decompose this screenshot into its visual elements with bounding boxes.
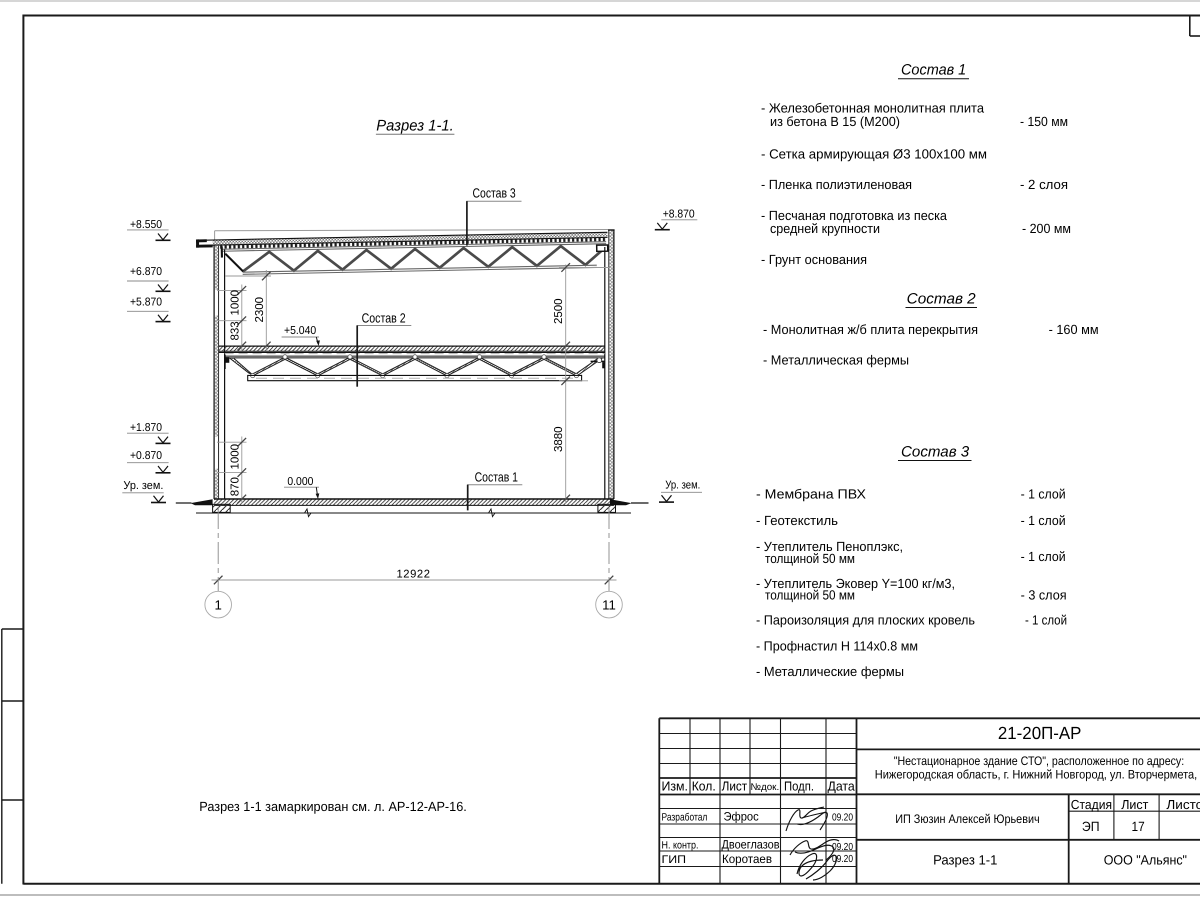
svg-text:2500: 2500 xyxy=(553,298,565,324)
svg-text:Коротаев: Коротаев xyxy=(722,852,772,866)
svg-text:+5.870: +5.870 xyxy=(130,297,162,309)
svg-text:2300: 2300 xyxy=(254,297,266,323)
svg-text:+1.870: +1.870 xyxy=(130,422,162,434)
svg-text:11: 11 xyxy=(602,597,616,612)
svg-text:Эфрос: Эфрос xyxy=(724,810,759,824)
svg-text:- 200 мм: - 200 мм xyxy=(1022,221,1071,236)
svg-text:+8.870: +8.870 xyxy=(663,209,695,221)
svg-text:Разрез 1-1.: Разрез 1-1. xyxy=(376,118,454,135)
svg-text:ЭП: ЭП xyxy=(1082,819,1100,834)
svg-text:- Геотекстиль: - Геотекстиль xyxy=(756,513,838,528)
svg-text:3880: 3880 xyxy=(553,426,565,452)
svg-text:+8.550: +8.550 xyxy=(130,219,162,231)
svg-text:Н. контр.: Н. контр. xyxy=(662,840,699,852)
svg-text:+5.040: +5.040 xyxy=(284,325,316,337)
svg-text:1000: 1000 xyxy=(229,290,241,316)
svg-text:- 1 слой: - 1 слой xyxy=(1021,487,1066,502)
svg-text:- Сетка армирующая Ø3 100х100: - Сетка армирующая Ø3 100х100 мм xyxy=(761,147,987,162)
svg-text:- Монолитная ж/б плита перекры: - Монолитная ж/б плита перекрытия xyxy=(763,322,978,337)
svg-text:17: 17 xyxy=(1132,819,1145,834)
svg-text:12922: 12922 xyxy=(396,569,430,581)
svg-text:1000: 1000 xyxy=(229,444,241,470)
svg-text:Лист: Лист xyxy=(722,779,748,794)
svg-text:Стадия: Стадия xyxy=(1071,797,1112,812)
svg-text:09.20: 09.20 xyxy=(832,812,853,823)
svg-text:"Нестационарное здание СТО", р: "Нестационарное здание СТО", расположенн… xyxy=(894,754,1184,768)
svg-text:Ур. зем.: Ур. зем. xyxy=(665,480,700,492)
svg-text:толщиной 50 мм: толщиной 50 мм xyxy=(765,588,855,603)
svg-text:- 2 слоя: - 2 слоя xyxy=(1020,177,1068,192)
svg-text:870: 870 xyxy=(229,477,241,496)
svg-text:Состав 2: Состав 2 xyxy=(907,290,977,307)
svg-text:толщиной 50 мм: толщиной 50 мм xyxy=(765,551,855,566)
svg-text:09.20: 09.20 xyxy=(832,842,853,853)
svg-text:Изм.: Изм. xyxy=(662,779,689,794)
svg-text:Состав 3: Состав 3 xyxy=(473,185,516,200)
svg-text:- Металлические фермы: - Металлические фермы xyxy=(756,664,904,679)
svg-text:Двоеглазов: Двоеглазов xyxy=(722,838,780,852)
svg-text:Состав 2: Состав 2 xyxy=(362,310,406,325)
svg-text:- 1 слой: - 1 слой xyxy=(1025,613,1067,628)
svg-text:0.000: 0.000 xyxy=(287,476,313,488)
svg-text:ГИП: ГИП xyxy=(662,854,687,866)
svg-text:ИП Зюзин Алексей Юрьевич: ИП Зюзин Алексей Юрьевич xyxy=(895,812,1039,826)
svg-text:- 150 мм: - 150 мм xyxy=(1020,114,1068,129)
svg-text:833: 833 xyxy=(229,321,241,340)
svg-text:- 1 слой: - 1 слой xyxy=(1021,549,1066,564)
svg-text:21-20П-АР: 21-20П-АР xyxy=(998,723,1082,743)
svg-text:- Грунт основания: - Грунт основания xyxy=(761,252,867,267)
svg-text:Ур. зем.: Ур. зем. xyxy=(123,480,163,492)
svg-text:- Мембрана ПВХ: - Мембрана ПВХ xyxy=(756,487,866,502)
svg-text:ООО "Альянс": ООО "Альянс" xyxy=(1104,852,1187,867)
svg-text:Разработал: Разработал xyxy=(662,812,708,824)
svg-text:Листов: Листов xyxy=(1166,797,1200,812)
svg-text:- Пароизоляция для плоских кро: - Пароизоляция для плоских кровель xyxy=(756,613,975,628)
svg-text:- 3 слоя: - 3 слоя xyxy=(1021,588,1067,603)
svg-text:Состав 1: Состав 1 xyxy=(475,469,518,484)
svg-text:1: 1 xyxy=(215,597,222,612)
svg-text:- 160 мм: - 160 мм xyxy=(1049,322,1099,337)
svg-text:- Профнастил Н 114х0.8 мм: - Профнастил Н 114х0.8 мм xyxy=(756,639,918,654)
svg-text:средней крупности: средней крупности xyxy=(770,221,880,236)
svg-text:Состав 1: Состав 1 xyxy=(901,62,966,79)
svg-text:Разрез 1-1: Разрез 1-1 xyxy=(933,853,997,868)
svg-text:Кол.: Кол. xyxy=(692,779,716,794)
svg-text:- Металлическая фермы: - Металлическая фермы xyxy=(763,353,909,368)
svg-text:- Пленка полиэтиленовая: - Пленка полиэтиленовая xyxy=(761,177,912,192)
svg-text:- 1 слой: - 1 слой xyxy=(1021,513,1066,528)
svg-text:Разрез 1-1 замаркирован см. л.: Разрез 1-1 замаркирован см. л. АР-12-АР-… xyxy=(199,799,467,814)
svg-text:+6.870: +6.870 xyxy=(130,266,162,278)
svg-text:Дата: Дата xyxy=(828,779,856,794)
svg-text:+0.870: +0.870 xyxy=(130,450,162,462)
svg-text:Состав 3: Состав 3 xyxy=(901,443,970,460)
svg-text:Подп.: Подп. xyxy=(784,779,814,794)
svg-text:Лист: Лист xyxy=(1121,797,1148,812)
svg-text:№док.: №док. xyxy=(751,782,780,793)
svg-text:Нижегородская область, г. Нижн: Нижегородская область, г. Нижний Новгоро… xyxy=(875,768,1200,782)
svg-text:из бетона В 15 (М200): из бетона В 15 (М200) xyxy=(770,114,900,129)
